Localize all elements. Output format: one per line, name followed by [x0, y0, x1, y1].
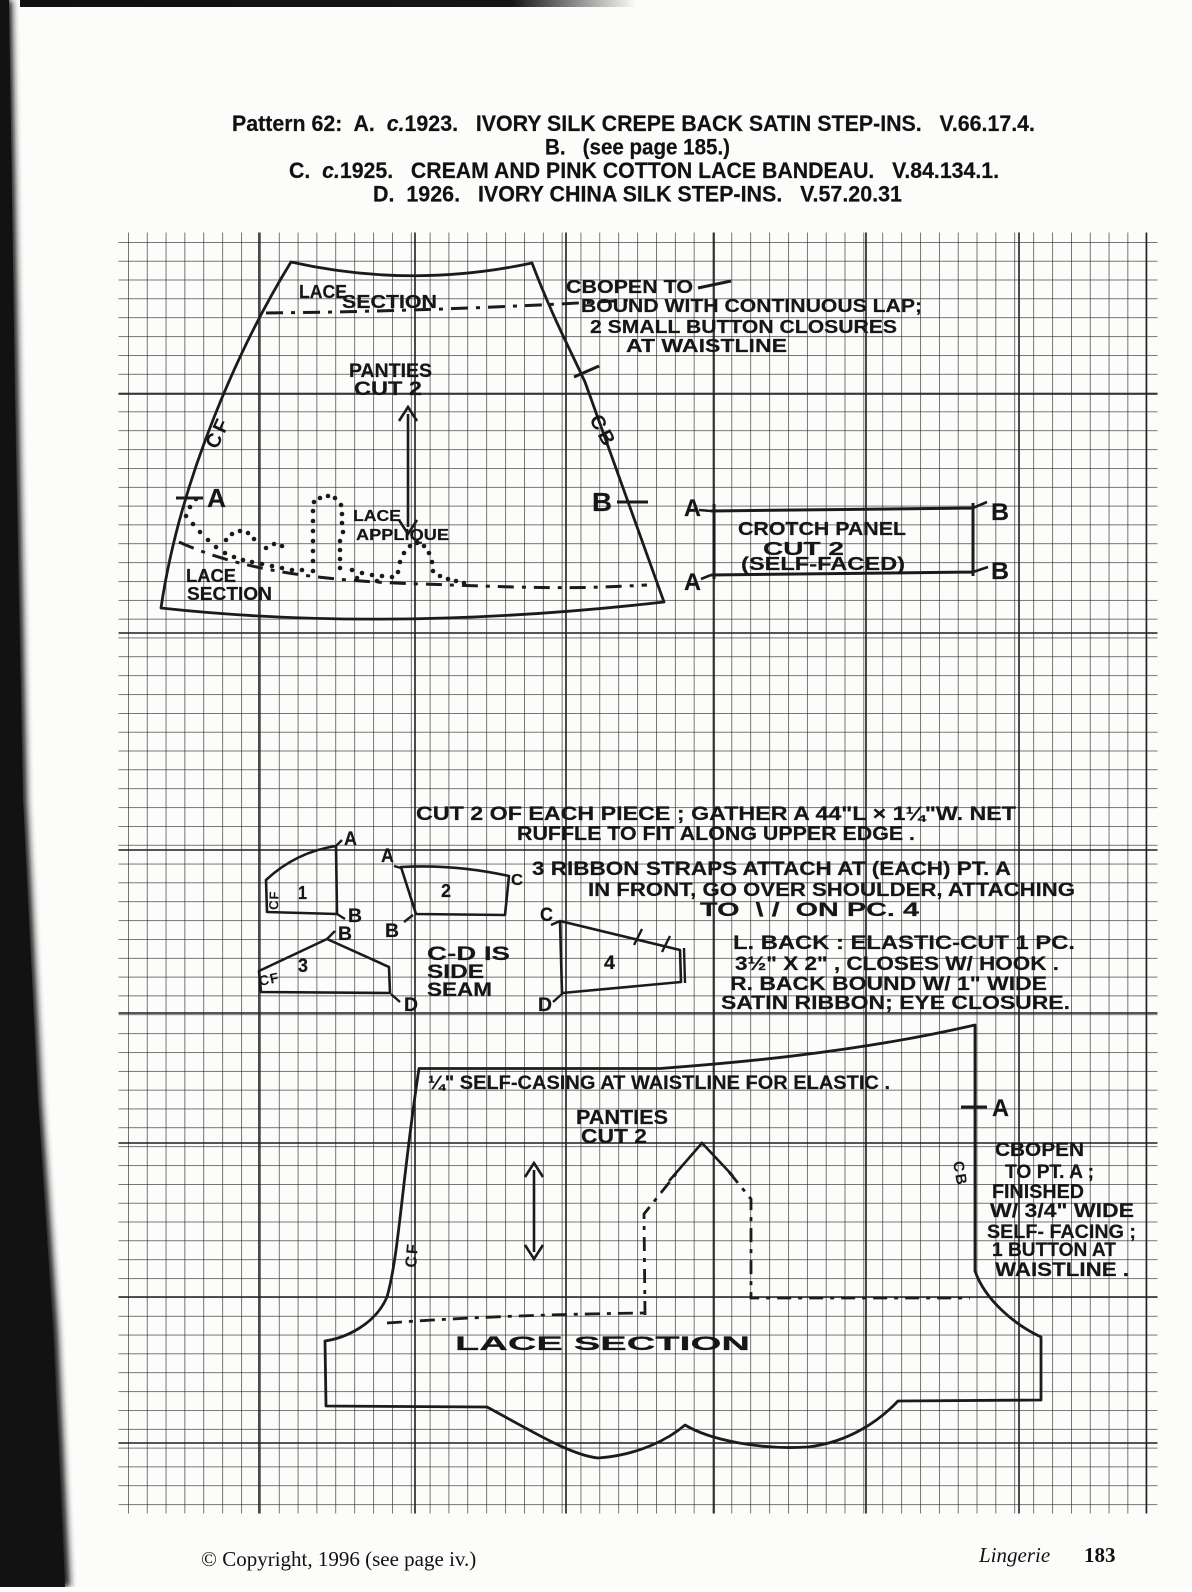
svg-text:4: 4 — [604, 953, 615, 974]
svg-text:(SELF-FACED): (SELF-FACED) — [741, 554, 905, 574]
svg-text:B. (see page 185.): B. (see page 185.) — [545, 135, 730, 160]
svg-text:3 RIBBON STRAPS ATTACH AT (EAC: 3 RIBBON STRAPS ATTACH AT (EACH) PT. A — [532, 859, 1011, 880]
svg-text:B: B — [991, 558, 1009, 585]
svg-text:LACE: LACE — [353, 508, 401, 525]
svg-text:CROTCH PANEL: CROTCH PANEL — [738, 519, 906, 539]
svg-text:B: B — [338, 924, 352, 945]
svg-text:CF: CF — [266, 890, 282, 910]
svg-text:CUT 2 OF EACH PIECE ; GATHER A: CUT 2 OF EACH PIECE ; GATHER A 44"L × 1¼… — [416, 804, 1016, 825]
svg-text:183: 183 — [1084, 1543, 1116, 1567]
svg-text:C: C — [511, 872, 523, 889]
svg-text:D: D — [538, 995, 552, 1016]
svg-text:© Copyright, 1996 (see page iv: © Copyright, 1996 (see page iv.) — [201, 1547, 476, 1571]
svg-text:CUT 2: CUT 2 — [581, 1126, 647, 1148]
svg-text:B: B — [991, 499, 1009, 526]
svg-text:C. c.1925. CREAM AND PINK C: C. c.1925. CREAM AND PINK COTTON LACE BA… — [289, 158, 999, 183]
svg-text:L. BACK : ELASTIC-CUT 1 PC.: L. BACK : ELASTIC-CUT 1 PC. — [733, 933, 1075, 954]
svg-text:A: A — [381, 846, 394, 867]
svg-text:Pattern 62: A. c.1923. IVO: Pattern 62: A. c.1923. IVORY SILK CREPE … — [232, 111, 1035, 136]
svg-text:CF: CF — [403, 1242, 422, 1269]
svg-text:¼" SELF-CASING AT WAISTLINE FO: ¼" SELF-CASING AT WAISTLINE FOR ELASTIC … — [428, 1073, 890, 1094]
svg-text:1 BUTTON AT: 1 BUTTON AT — [992, 1240, 1116, 1261]
svg-text:SATIN RIBBON; EYE CLOSURE.: SATIN RIBBON; EYE CLOSURE. — [721, 993, 1070, 1014]
svg-text:APPLIQUE: APPLIQUE — [356, 527, 449, 544]
svg-text:SECTION: SECTION — [187, 584, 272, 604]
svg-text:LACE SECTION: LACE SECTION — [455, 1334, 750, 1355]
svg-text:BOUND WITH CONTINUOUS LAP;: BOUND WITH CONTINUOUS LAP; — [581, 296, 922, 316]
svg-text:B: B — [592, 487, 612, 517]
svg-text:AT WAISTLINE: AT WAISTLINE — [626, 336, 787, 356]
svg-text:FINISHED: FINISHED — [992, 1182, 1084, 1203]
svg-text:LACE: LACE — [186, 566, 236, 586]
svg-text:CBOPEN TO: CBOPEN TO — [566, 277, 693, 297]
svg-text:1: 1 — [298, 883, 307, 903]
svg-text:A: A — [992, 1095, 1009, 1122]
svg-text:A: A — [207, 483, 226, 513]
svg-text:B: B — [385, 921, 399, 942]
svg-text:TO \ / ON PC. 4: TO \ / ON PC. 4 — [700, 900, 920, 921]
svg-text:C: C — [540, 905, 553, 926]
svg-text:CUT 2: CUT 2 — [354, 379, 422, 400]
svg-text:IN FRONT, GO OVER SHOULDER, AT: IN FRONT, GO OVER SHOULDER, ATTACHING — [588, 880, 1075, 901]
svg-text:Lingerie: Lingerie — [978, 1543, 1050, 1567]
svg-text:RUFFLE TO FIT ALONG UPPER EDGE: RUFFLE TO FIT ALONG UPPER EDGE . — [517, 824, 915, 845]
svg-text:3½" X 2" , CLOSES W/ HOOK .: 3½" X 2" , CLOSES W/ HOOK . — [735, 954, 1059, 975]
svg-text:SECTION: SECTION — [342, 292, 437, 312]
svg-text:3: 3 — [298, 956, 308, 977]
svg-text:CBOPEN: CBOPEN — [995, 1140, 1084, 1161]
svg-text:A: A — [684, 569, 701, 596]
svg-text:SEAM: SEAM — [427, 980, 492, 1001]
svg-text:W/ 3/4" WIDE: W/ 3/4" WIDE — [990, 1201, 1134, 1222]
svg-text:D: D — [404, 995, 418, 1016]
svg-text:A: A — [684, 495, 701, 522]
svg-text:LACE: LACE — [299, 282, 347, 302]
svg-text:WAISTLINE .: WAISTLINE . — [995, 1260, 1129, 1281]
svg-text:D. 1926. IVORY CHINA SILK S: D. 1926. IVORY CHINA SILK STEP-INS. V.57… — [373, 182, 902, 207]
svg-text:2 SMALL BUTTON CLOSURES: 2 SMALL BUTTON CLOSURES — [590, 317, 897, 337]
svg-text:R. BACK BOUND W/ 1" WIDE: R. BACK BOUND W/ 1" WIDE — [730, 974, 1047, 995]
svg-text:TO PT. A ;: TO PT. A ; — [1005, 1162, 1094, 1183]
svg-text:A: A — [344, 829, 357, 850]
svg-text:2: 2 — [441, 881, 451, 901]
